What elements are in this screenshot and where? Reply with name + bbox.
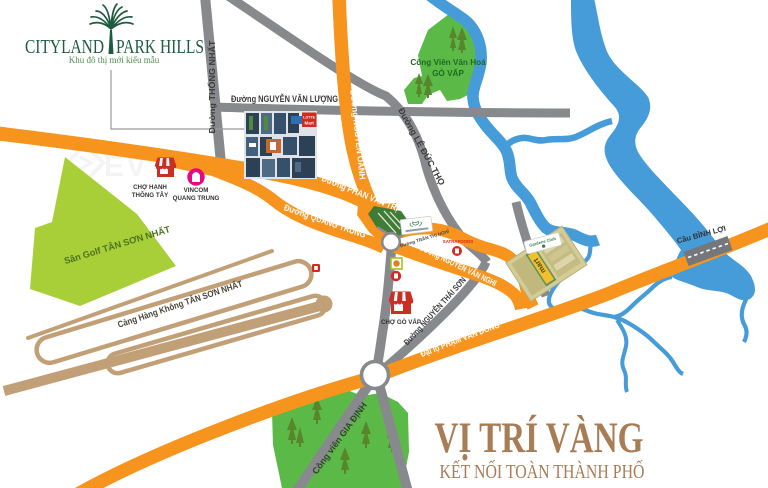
svg-text:Đường NGUYỄN VĂN LƯỢNG: Đường NGUYỄN VĂN LƯỢNG [231, 93, 338, 104]
svg-text:LOTTE: LOTTE [303, 116, 315, 120]
svg-text:CHỢ GÒ VẤP: CHỢ GÒ VẤP [381, 318, 421, 326]
svg-text:Mart: Mart [305, 121, 315, 126]
svg-text:THÔNG TÂY: THÔNG TÂY [132, 191, 169, 199]
svg-text:SATRAFOODS: SATRAFOODS [443, 239, 473, 244]
svg-text:QUANG TRUNG: QUANG TRUNG [173, 195, 220, 202]
svg-text:GÒ VẤP: GÒ VẤP [432, 67, 464, 78]
svg-text:VINCOM: VINCOM [184, 187, 209, 194]
svg-text:KẾT NỐI TOÀN THÀNH PHỐ: KẾT NỐI TOÀN THÀNH PHỐ [440, 461, 645, 483]
svg-text:Khu đô thị mới kiểu mẫu: Khu đô thị mới kiểu mẫu [69, 55, 160, 65]
svg-text:VỊ TRÍ VÀNG: VỊ TRÍ VÀNG [435, 415, 644, 462]
svg-text:Đường THỐNG NHẤT: Đường THỐNG NHẤT [206, 41, 217, 134]
svg-text:Công Viên Văn Hoá: Công Viên Văn Hoá [410, 58, 486, 67]
svg-text:CHỢ HẠNH: CHỢ HẠNH [133, 184, 167, 191]
